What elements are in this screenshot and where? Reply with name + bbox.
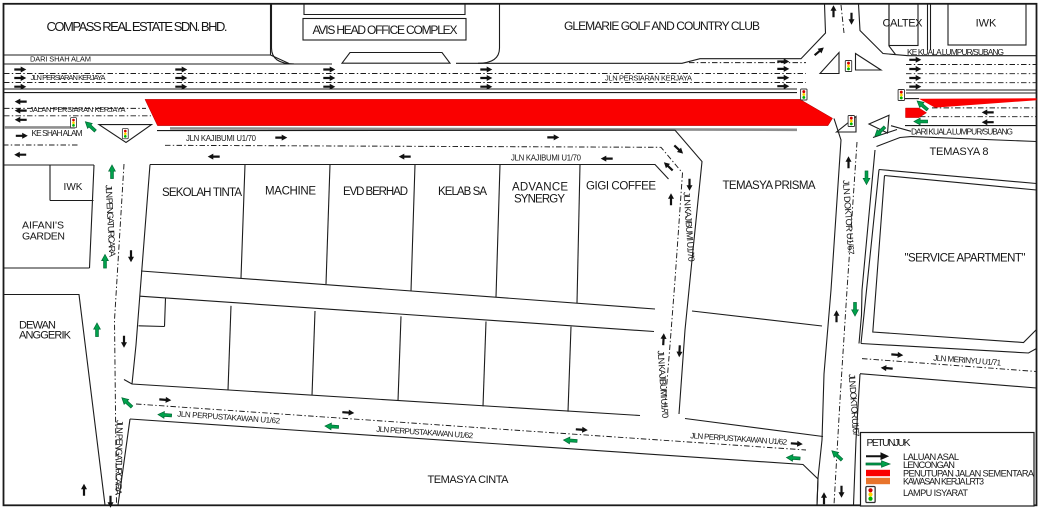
- svg-text:JLN PENGATURCARA: JLN PENGATURCARA: [113, 420, 124, 495]
- svg-text:DARI SHAH ALAM: DARI SHAH ALAM: [30, 55, 91, 64]
- svg-text:TEMASYA CINTA: TEMASYA CINTA: [428, 474, 510, 486]
- svg-text:AVIS HEAD OFFICE COMPLEX: AVIS HEAD OFFICE COMPLEX: [313, 23, 458, 37]
- svg-text:JLN KAJIBUMI U1/70: JLN KAJIBUMI U1/70: [511, 153, 582, 162]
- svg-text:JALAN PERSIARAN KERJAYA: JALAN PERSIARAN KERJAYA: [30, 105, 126, 114]
- svg-text:KE SHAH ALAM: KE SHAH ALAM: [32, 128, 83, 138]
- svg-text:PETUNJUK: PETUNJUK: [867, 438, 911, 449]
- svg-text:KAWASAN KERJA LRT3: KAWASAN KERJA LRT3: [903, 476, 984, 486]
- svg-text:GIGI COFFEE: GIGI COFFEE: [586, 181, 656, 193]
- svg-text:EVD BERHAD: EVD BERHAD: [343, 186, 408, 198]
- svg-text:KELAB SA: KELAB SA: [438, 186, 487, 198]
- svg-text:IWK: IWK: [976, 18, 997, 30]
- svg-text:MACHINE: MACHINE: [265, 185, 316, 197]
- svg-text:COMPASS REAL ESTATE SDN. BHD.: COMPASS REAL ESTATE SDN. BHD.: [47, 19, 228, 34]
- svg-text:SYNERGY: SYNERGY: [514, 194, 565, 206]
- svg-text:CALTEX: CALTEX: [883, 18, 924, 30]
- svg-text:ADVANCE: ADVANCE: [512, 182, 568, 194]
- svg-text:JLN KAJIBUMI U1/70: JLN KAJIBUMI U1/70: [186, 134, 257, 143]
- svg-text:ANGGERIK: ANGGERIK: [19, 330, 72, 342]
- svg-text:GARDEN: GARDEN: [22, 230, 65, 242]
- svg-text:LAMPU ISYARAT: LAMPU ISYARAT: [903, 488, 968, 498]
- svg-text:IWK: IWK: [64, 182, 83, 193]
- svg-text:TEMASYA PRISMA: TEMASYA PRISMA: [723, 180, 816, 192]
- svg-text:TEMASYA 8: TEMASYA 8: [930, 146, 989, 158]
- svg-text:DARI KUALA LUMPUR/SUBANG: DARI KUALA LUMPUR/SUBANG: [911, 127, 1013, 137]
- svg-text:"SERVICE APARTMENT": "SERVICE APARTMENT": [905, 253, 1026, 265]
- svg-text:KE KUALA LUMPUR/SUBANG: KE KUALA LUMPUR/SUBANG: [907, 47, 1004, 57]
- svg-text:GLEMARIE GOLF AND COUNTRY CLUB: GLEMARIE GOLF AND COUNTRY CLUB: [564, 19, 760, 33]
- svg-text:JLN PERSIARAN KERJAYA: JLN PERSIARAN KERJAYA: [605, 73, 692, 82]
- svg-text:SEKOLAH TINTA: SEKOLAH TINTA: [162, 187, 242, 199]
- svg-text:JLN PERSIARAN KERJAYA: JLN PERSIARAN KERJAYA: [31, 73, 106, 82]
